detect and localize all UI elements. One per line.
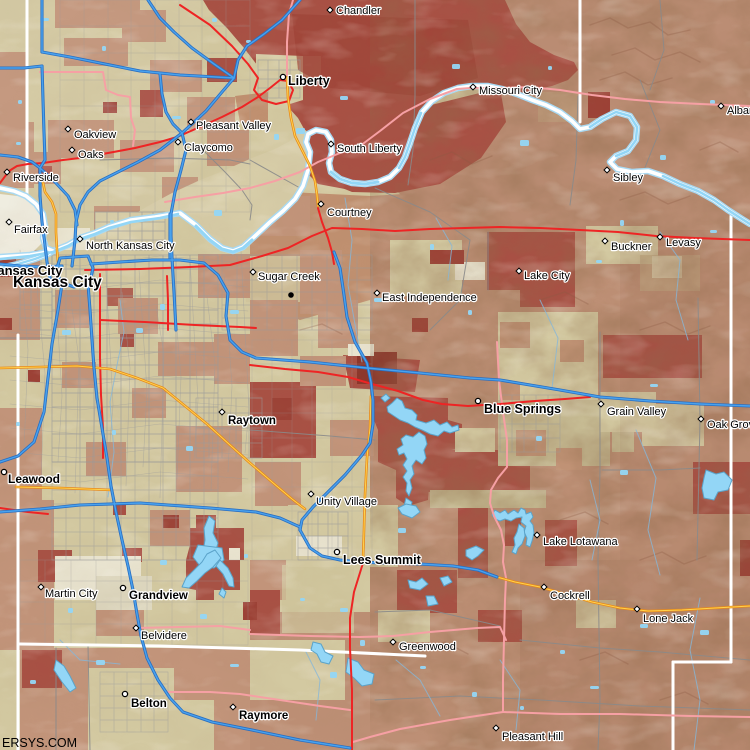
svg-text:Martin City: Martin City <box>45 588 98 600</box>
svg-text:Liberty: Liberty <box>288 74 330 88</box>
svg-text:Claycomo: Claycomo <box>184 142 233 154</box>
svg-text:Chandler: Chandler <box>336 5 381 17</box>
svg-text:Levasy: Levasy <box>666 237 701 249</box>
svg-text:Unity Village: Unity Village <box>316 496 377 508</box>
svg-text:East Independence: East Independence <box>382 292 477 304</box>
svg-text:Lone Jack: Lone Jack <box>643 613 694 625</box>
svg-text:Riverside: Riverside <box>13 172 59 184</box>
svg-text:Lees Summit: Lees Summit <box>343 553 422 567</box>
svg-text:Fairfax: Fairfax <box>14 224 48 236</box>
svg-text:Cockrell: Cockrell <box>550 590 590 602</box>
svg-text:Oaks: Oaks <box>78 149 104 161</box>
svg-text:Belvidere: Belvidere <box>141 630 187 642</box>
svg-text:North Kansas City: North Kansas City <box>86 240 175 252</box>
svg-text:Oakview: Oakview <box>74 129 116 141</box>
svg-text:Blue Springs: Blue Springs <box>484 402 561 416</box>
svg-text:Sugar Creek: Sugar Creek <box>258 271 320 283</box>
svg-text:Lake City: Lake City <box>524 270 570 282</box>
svg-text:Courtney: Courtney <box>327 207 372 219</box>
svg-text:Grain Valley: Grain Valley <box>607 406 667 418</box>
svg-text:Pleasant Hill: Pleasant Hill <box>502 731 563 743</box>
svg-text:Albany: Albany <box>727 105 750 117</box>
svg-text:ERSYS.COM: ERSYS.COM <box>2 736 77 750</box>
svg-text:Belton: Belton <box>131 698 167 710</box>
svg-text:Sibley: Sibley <box>613 172 643 184</box>
svg-text:Oak Grove: Oak Grove <box>707 419 750 431</box>
svg-text:Kansas City: Kansas City <box>13 274 102 291</box>
svg-text:Leawood: Leawood <box>8 472 60 486</box>
svg-text:Grandview: Grandview <box>129 590 188 602</box>
svg-text:Raymore: Raymore <box>239 710 288 722</box>
svg-text:Buckner: Buckner <box>611 241 652 253</box>
svg-text:Raytown: Raytown <box>228 415 276 427</box>
svg-text:South Liberty: South Liberty <box>337 143 402 155</box>
svg-text:Missouri City: Missouri City <box>479 85 542 97</box>
svg-text:Pleasant Valley: Pleasant Valley <box>196 120 272 132</box>
svg-text:Greenwood: Greenwood <box>399 641 456 653</box>
svg-text:Lake Lotawana: Lake Lotawana <box>543 536 618 548</box>
